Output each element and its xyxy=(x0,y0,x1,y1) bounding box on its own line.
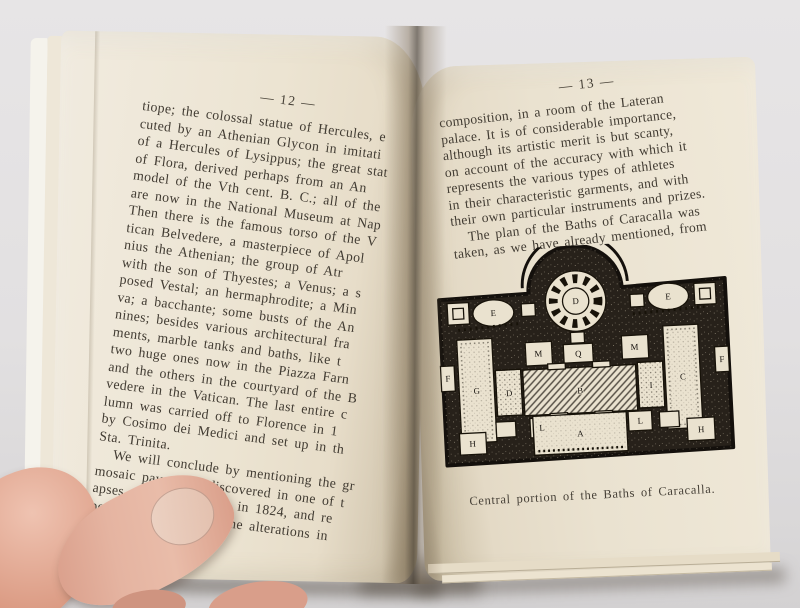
right-page: — 13 — composition, in a room of the Lat… xyxy=(409,57,771,582)
plan-room-label: C xyxy=(680,371,686,381)
plan-room-label: M xyxy=(630,342,638,352)
book-photo: — 12 — tiope; the colossal statue of Her… xyxy=(0,0,800,608)
plan-room-label: D xyxy=(506,388,513,398)
plan-room-label: Q xyxy=(575,348,582,358)
plan-room-label: A xyxy=(577,428,584,438)
plan-room-label: B xyxy=(577,385,583,395)
left-page-text: — 12 — tiope; the colossal statue of Her… xyxy=(89,74,432,550)
plan-room-label: F xyxy=(719,354,724,364)
plan-room-label: I xyxy=(649,380,653,390)
plan-room-label: L xyxy=(539,422,545,432)
figure-caption: Central portion of the Baths of Caracall… xyxy=(432,480,752,511)
plan-room-label: F xyxy=(445,374,450,384)
baths-floor-plan-figure: D Q B M M E E G C D I F F L L H H xyxy=(420,237,753,511)
gutter-shadow xyxy=(381,26,447,584)
plan-room-label: E xyxy=(665,291,671,301)
plan-room-label: L xyxy=(637,416,643,426)
right-page-text: — 13 — composition, in a room of the Lat… xyxy=(436,59,755,263)
floor-plan-engraving: D Q B M M E E G C D I F F L L H H xyxy=(429,238,742,485)
left-page: — 12 — tiope; the colossal statue of Her… xyxy=(51,31,427,584)
plan-room-label: H xyxy=(698,424,705,434)
plan-room-label: G xyxy=(473,386,480,396)
plan-room-label: H xyxy=(469,439,476,449)
plan-room-label: D xyxy=(572,296,579,306)
plan-room-label: M xyxy=(534,348,542,358)
plan-room-label: E xyxy=(490,308,496,318)
